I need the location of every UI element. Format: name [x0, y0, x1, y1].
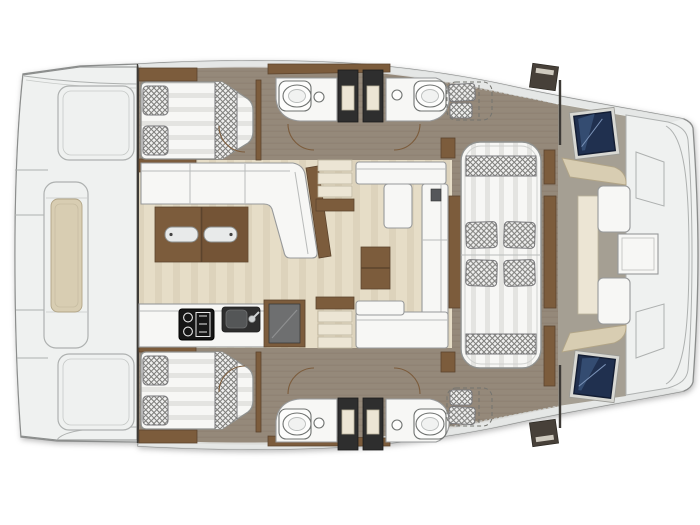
- daybed-cushion: [504, 259, 536, 286]
- fore-panel-strip: [578, 196, 598, 314]
- fore-seat-top: [598, 186, 630, 232]
- coffee-table: [361, 247, 390, 289]
- berth-pillow: [143, 86, 168, 115]
- salon-bench-right: [422, 184, 448, 330]
- washbasin-icon: [314, 92, 324, 102]
- toilet-icon: [414, 81, 446, 111]
- salon-bench-top: [356, 162, 446, 184]
- fore-seat-bottom: [598, 278, 630, 324]
- salon-chaise: [384, 184, 412, 228]
- daybed-cushion: [504, 221, 536, 248]
- aft-bench: [44, 182, 88, 348]
- helm-screen-icon: [569, 350, 619, 402]
- headboard-shelf: [139, 68, 197, 81]
- helm-screen-icon: [569, 107, 619, 159]
- stove-icon: [179, 309, 214, 340]
- catamaran-floor-plan: Catamaran interior layout plan - top vie…: [0, 0, 700, 525]
- fore-cockpit-table: [618, 234, 658, 274]
- cabin-wall: [256, 80, 261, 160]
- daybed-wood-rail: [449, 196, 461, 308]
- daybed-cushion: [466, 259, 498, 286]
- galley: Galley with stove, sink and refrigerator: [139, 300, 305, 347]
- berth-pillow: [143, 396, 168, 425]
- sink-icon: [222, 307, 260, 332]
- deck-locker-top: [58, 86, 134, 160]
- daybed-cushion: [466, 221, 498, 248]
- washbasin-icon: [314, 418, 324, 428]
- aft-bench-cushion: [51, 199, 82, 312]
- wardrobe-bottom: [529, 419, 558, 446]
- toilet-icon: [414, 409, 446, 439]
- washbasin-icon: [392, 90, 402, 100]
- berth-runner: [215, 350, 237, 431]
- salon-bench-corner: [356, 301, 404, 315]
- toilet-icon: [279, 81, 311, 111]
- salon-accessory: [431, 189, 441, 201]
- salon-table: [155, 207, 248, 262]
- aft-salon: L-shaped settee with folding wood table: [141, 163, 331, 262]
- daybed-band: [466, 334, 536, 354]
- daybed-band: [466, 156, 536, 176]
- berth-runner: [215, 80, 237, 161]
- toilet-icon: [279, 409, 311, 439]
- aft-deck: Aft deck with long bench seat and locker…: [15, 67, 137, 440]
- wardrobe-top: [529, 63, 558, 90]
- salon-bench-bottom: [356, 312, 448, 348]
- cabin-wall: [256, 352, 261, 432]
- daybed-wood-rail: [544, 196, 556, 308]
- berth-pillow: [143, 356, 168, 385]
- deck-locker-bottom: [58, 354, 134, 430]
- washbasin-icon: [392, 420, 402, 430]
- fridge-icon: [264, 300, 305, 347]
- berth-pillow: [143, 126, 168, 155]
- headboard-shelf: [139, 430, 197, 443]
